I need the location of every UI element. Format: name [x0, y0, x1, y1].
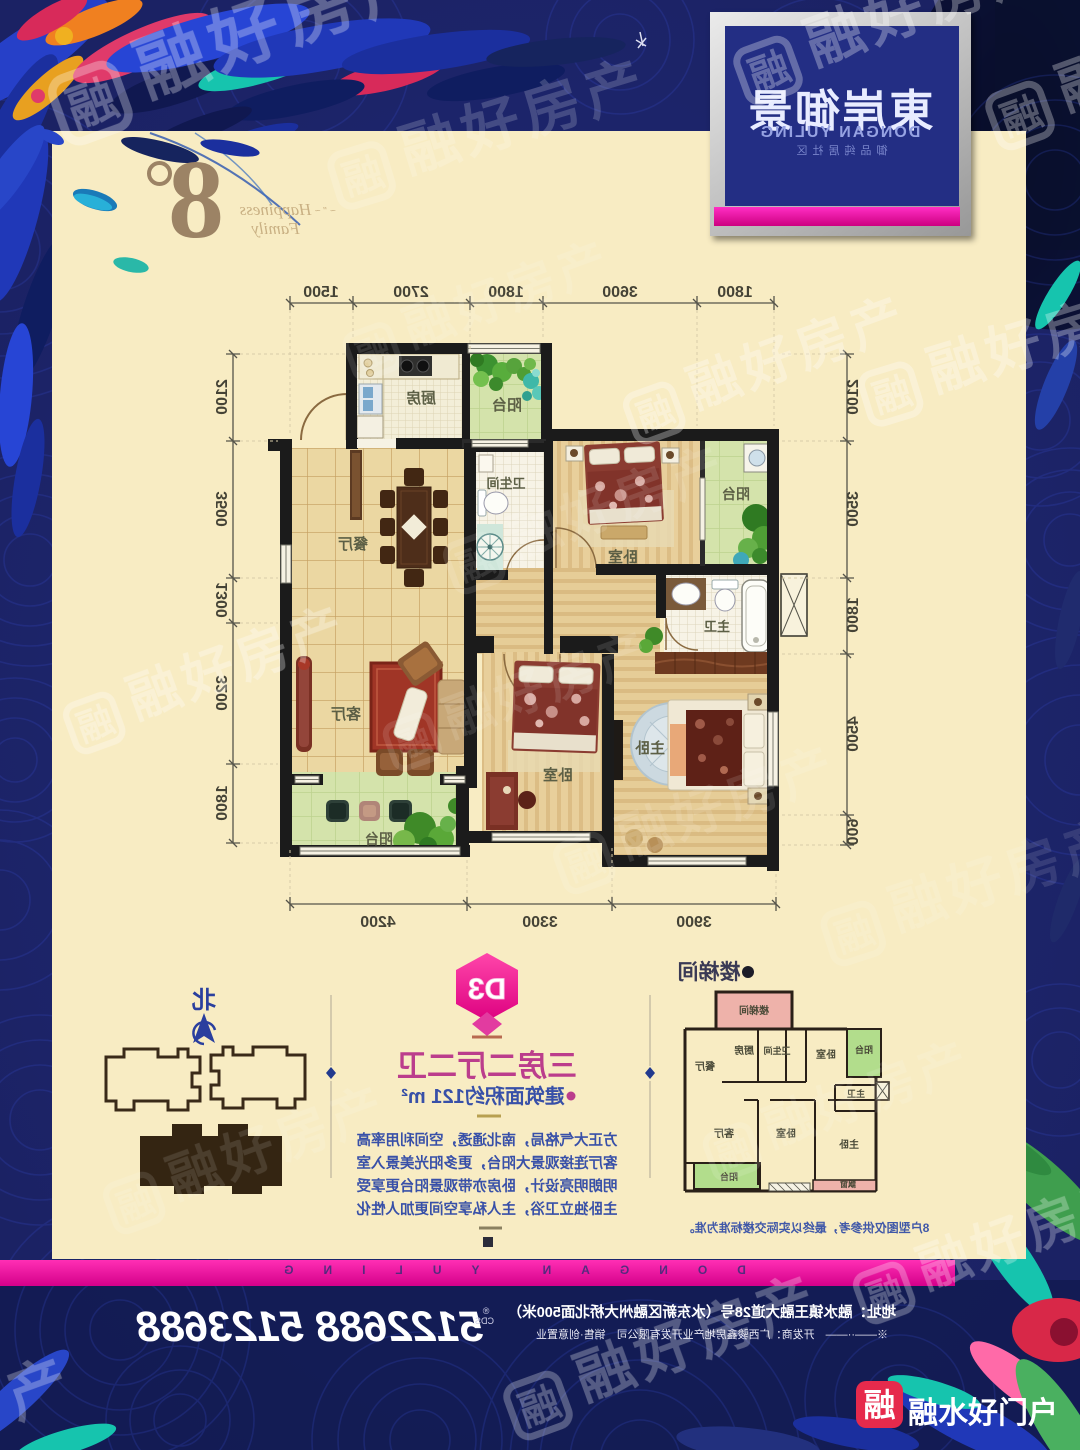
- svg-text:产: 产: [0, 1348, 77, 1431]
